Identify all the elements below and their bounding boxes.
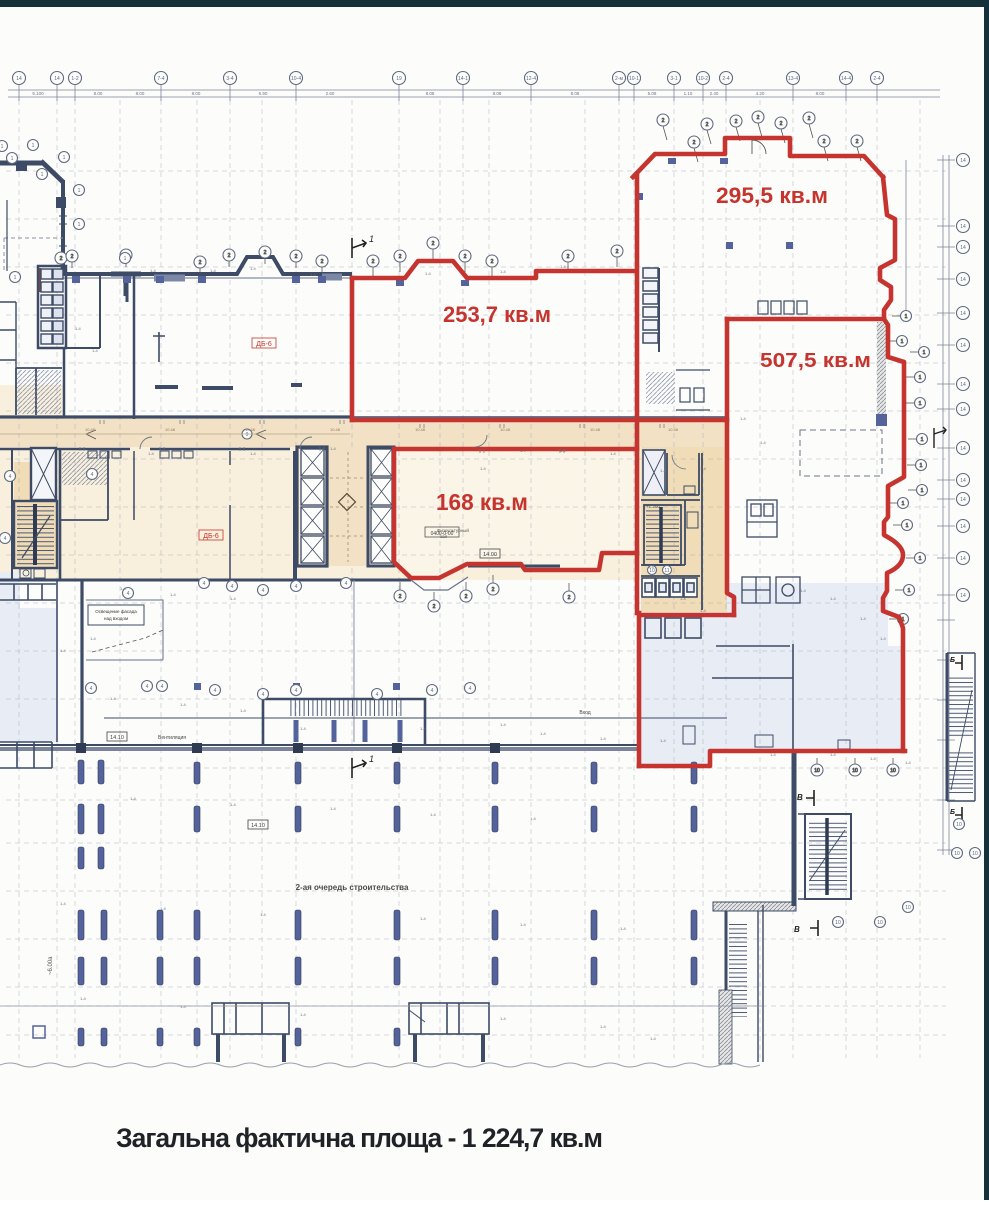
svg-text:5.08: 5.08 bbox=[648, 91, 657, 96]
svg-text:10: 10 bbox=[905, 905, 911, 911]
svg-text:8.00: 8.00 bbox=[816, 91, 825, 96]
svg-text:2.60: 2.60 bbox=[326, 91, 335, 96]
svg-text:4: 4 bbox=[146, 684, 149, 690]
svg-text:2: 2 bbox=[228, 253, 231, 259]
svg-text:10.48: 10.48 bbox=[500, 427, 511, 432]
svg-text:2: 2 bbox=[735, 119, 738, 125]
svg-text:14-4: 14-4 bbox=[841, 76, 851, 82]
svg-text:11: 11 bbox=[664, 568, 669, 574]
svg-text:1-4: 1-4 bbox=[500, 269, 507, 274]
svg-text:Б: Б bbox=[950, 809, 955, 816]
svg-text:1-4: 1-4 bbox=[650, 1036, 657, 1041]
svg-text:1: 1 bbox=[124, 256, 127, 262]
svg-text:4.20: 4.20 bbox=[756, 91, 765, 96]
svg-text:1-4: 1-4 bbox=[830, 752, 837, 757]
svg-text:1-4: 1-4 bbox=[250, 451, 257, 456]
svg-text:4: 4 bbox=[431, 688, 434, 694]
svg-text:10-1: 10-1 bbox=[629, 76, 639, 82]
svg-text:10-4: 10-4 bbox=[291, 76, 301, 82]
svg-text:1-4: 1-4 bbox=[905, 760, 912, 765]
svg-text:1-4: 1-4 bbox=[600, 1024, 607, 1029]
svg-text:1-4: 1-4 bbox=[700, 608, 707, 613]
svg-text:10.48: 10.48 bbox=[165, 427, 176, 432]
svg-text:2: 2 bbox=[465, 594, 468, 600]
svg-text:14: 14 bbox=[960, 478, 966, 484]
svg-text:1-4: 1-4 bbox=[148, 451, 155, 456]
svg-text:1-4: 1-4 bbox=[770, 752, 777, 757]
svg-text:2: 2 bbox=[662, 118, 665, 124]
svg-text:4: 4 bbox=[9, 474, 12, 480]
svg-text:1-4: 1-4 bbox=[180, 1004, 187, 1009]
svg-text:14: 14 bbox=[16, 76, 22, 82]
svg-text:19: 19 bbox=[396, 76, 402, 82]
svg-text:4: 4 bbox=[295, 584, 298, 590]
svg-text:14-1: 14-1 bbox=[458, 76, 468, 82]
svg-text:1-4: 1-4 bbox=[500, 1016, 507, 1021]
svg-text:1-4: 1-4 bbox=[430, 812, 437, 817]
svg-text:5.90: 5.90 bbox=[259, 91, 268, 96]
svg-text:2: 2 bbox=[60, 256, 63, 262]
svg-text:1-4: 1-4 bbox=[680, 596, 687, 601]
svg-text:8.00: 8.00 bbox=[136, 91, 145, 96]
svg-text:2: 2 bbox=[321, 259, 324, 265]
svg-text:14: 14 bbox=[960, 524, 966, 530]
svg-text:1-4: 1-4 bbox=[110, 696, 117, 701]
svg-text:2: 2 bbox=[780, 121, 783, 127]
svg-text:1-4: 1-4 bbox=[75, 326, 82, 331]
svg-text:1-4: 1-4 bbox=[60, 648, 67, 653]
svg-text:1-4: 1-4 bbox=[420, 726, 427, 731]
svg-text:2: 2 bbox=[432, 241, 435, 247]
svg-text:1-4: 1-4 bbox=[520, 922, 527, 927]
svg-text:2-м: 2-м bbox=[615, 76, 623, 82]
svg-text:14.00: 14.00 bbox=[483, 552, 497, 558]
svg-text:Б: Б bbox=[950, 657, 955, 664]
svg-text:1-4: 1-4 bbox=[880, 636, 887, 641]
svg-text:1-4: 1-4 bbox=[560, 448, 567, 453]
svg-text:1: 1 bbox=[921, 488, 924, 494]
svg-text:1-4: 1-4 bbox=[870, 756, 877, 761]
svg-text:12-4: 12-4 bbox=[526, 76, 536, 82]
svg-text:2: 2 bbox=[808, 116, 811, 122]
svg-text:10: 10 bbox=[972, 851, 978, 857]
svg-text:10.48: 10.48 bbox=[668, 427, 679, 432]
svg-text:1-4: 1-4 bbox=[860, 616, 867, 621]
svg-text:1-4: 1-4 bbox=[760, 440, 767, 445]
svg-text:2: 2 bbox=[372, 259, 375, 265]
svg-text:10: 10 bbox=[956, 822, 962, 828]
svg-text:1-4: 1-4 bbox=[170, 592, 177, 597]
svg-text:8.08: 8.08 bbox=[571, 91, 580, 96]
svg-text:1-4: 1-4 bbox=[230, 596, 237, 601]
svg-text:3-4: 3-4 bbox=[226, 76, 233, 82]
svg-text:1-4: 1-4 bbox=[210, 268, 217, 273]
svg-text:1-4: 1-4 bbox=[560, 264, 567, 269]
svg-text:10: 10 bbox=[814, 768, 820, 774]
svg-text:1: 1 bbox=[14, 275, 17, 281]
svg-text:1-4: 1-4 bbox=[600, 736, 607, 741]
svg-text:2: 2 bbox=[693, 140, 696, 146]
svg-text:2: 2 bbox=[71, 254, 74, 260]
svg-text:1-2: 1-2 bbox=[71, 76, 78, 82]
svg-text:1-4: 1-4 bbox=[830, 596, 837, 601]
svg-text:В: В bbox=[794, 925, 800, 934]
svg-text:2: 2 bbox=[433, 604, 436, 610]
svg-text:1: 1 bbox=[32, 143, 35, 149]
svg-text:1-4: 1-4 bbox=[240, 708, 247, 713]
svg-text:2: 2 bbox=[757, 115, 760, 121]
svg-text:1-4: 1-4 bbox=[90, 636, 97, 641]
svg-text:2: 2 bbox=[295, 254, 298, 260]
svg-text:10: 10 bbox=[835, 920, 841, 926]
svg-text:1-4: 1-4 bbox=[250, 266, 257, 271]
svg-text:14: 14 bbox=[960, 224, 966, 230]
svg-text:4: 4 bbox=[127, 591, 130, 597]
svg-text:8.08: 8.08 bbox=[426, 91, 435, 96]
svg-text:1: 1 bbox=[1, 144, 4, 150]
svg-text:14: 14 bbox=[960, 407, 966, 413]
svg-text:4: 4 bbox=[262, 692, 265, 698]
svg-text:2-ая очередь строительства: 2-ая очередь строительства bbox=[296, 883, 409, 892]
svg-text:4: 4 bbox=[203, 581, 206, 587]
svg-text:1: 1 bbox=[905, 314, 908, 320]
svg-text:168 кв.м: 168 кв.м bbox=[436, 489, 528, 515]
svg-text:4: 4 bbox=[231, 584, 234, 590]
svg-text:14.10: 14.10 bbox=[110, 735, 124, 741]
svg-text:1-4: 1-4 bbox=[300, 726, 307, 731]
svg-text:1: 1 bbox=[369, 754, 374, 764]
svg-text:1-4: 1-4 bbox=[230, 802, 237, 807]
svg-text:1: 1 bbox=[902, 501, 905, 507]
svg-text:1-4: 1-4 bbox=[120, 586, 127, 591]
svg-text:1: 1 bbox=[63, 155, 66, 161]
svg-text:14.10: 14.10 bbox=[251, 823, 265, 829]
svg-text:1-4: 1-4 bbox=[150, 268, 157, 273]
svg-text:2: 2 bbox=[706, 122, 709, 128]
svg-text:~6.00а: ~6.00а bbox=[48, 956, 54, 975]
svg-text:2: 2 bbox=[616, 249, 619, 255]
svg-text:1-4: 1-4 bbox=[425, 271, 432, 276]
svg-text:8.00: 8.00 bbox=[94, 91, 103, 96]
svg-text:1: 1 bbox=[921, 437, 924, 443]
svg-text:Освещение фасада: Освещение фасада bbox=[95, 609, 137, 614]
svg-text:1-4: 1-4 bbox=[800, 588, 807, 593]
svg-text:1: 1 bbox=[78, 188, 81, 194]
svg-text:4: 4 bbox=[295, 688, 298, 694]
svg-text:14: 14 bbox=[960, 343, 966, 349]
svg-text:10: 10 bbox=[890, 768, 896, 774]
svg-text:1-4: 1-4 bbox=[310, 272, 317, 277]
svg-text:1-4: 1-4 bbox=[260, 912, 267, 917]
svg-text:В: В bbox=[797, 793, 803, 802]
svg-text:4: 4 bbox=[91, 472, 94, 478]
svg-text:1: 1 bbox=[78, 222, 81, 228]
svg-text:2: 2 bbox=[823, 139, 826, 145]
svg-text:ДБ-6: ДБ-6 bbox=[203, 533, 219, 540]
svg-text:1-4: 1-4 bbox=[420, 916, 427, 921]
svg-text:14: 14 bbox=[960, 382, 966, 388]
svg-text:2: 2 bbox=[567, 254, 570, 260]
svg-text:1.10: 1.10 bbox=[684, 91, 693, 96]
svg-text:10: 10 bbox=[852, 768, 858, 774]
svg-text:1-4: 1-4 bbox=[648, 564, 655, 569]
svg-text:1-4: 1-4 bbox=[330, 446, 337, 451]
svg-text:295,5 кв.м: 295,5 кв.м bbox=[716, 183, 828, 208]
svg-text:1-4: 1-4 bbox=[740, 416, 747, 421]
svg-text:1: 1 bbox=[11, 156, 14, 162]
svg-text:10.48: 10.48 bbox=[590, 427, 601, 432]
svg-text:2: 2 bbox=[492, 587, 495, 593]
svg-text:4: 4 bbox=[4, 536, 7, 542]
svg-text:14: 14 bbox=[54, 76, 60, 82]
svg-text:253,7 кв.м: 253,7 кв.м bbox=[443, 302, 551, 327]
svg-text:1-4: 1-4 bbox=[610, 451, 617, 456]
svg-text:над входом: над входом bbox=[104, 616, 128, 621]
svg-text:1-4: 1-4 bbox=[660, 738, 667, 743]
svg-text:2: 2 bbox=[464, 254, 467, 260]
svg-text:4: 4 bbox=[469, 686, 472, 692]
svg-text:1-4: 1-4 bbox=[480, 466, 487, 471]
svg-text:2: 2 bbox=[199, 260, 202, 266]
svg-text:2: 2 bbox=[491, 259, 494, 265]
svg-text:8.00: 8.00 bbox=[192, 91, 201, 96]
svg-text:1-4: 1-4 bbox=[500, 722, 507, 727]
svg-text:1-4: 1-4 bbox=[92, 348, 99, 353]
svg-text:10: 10 bbox=[877, 920, 883, 926]
svg-text:1-4: 1-4 bbox=[620, 926, 627, 931]
svg-text:13-4: 13-4 bbox=[788, 76, 798, 82]
svg-text:1: 1 bbox=[920, 463, 923, 469]
svg-text:1-4: 1-4 bbox=[300, 1012, 307, 1017]
svg-text:2.40: 2.40 bbox=[710, 91, 719, 96]
svg-text:1: 1 bbox=[41, 172, 44, 178]
svg-text:14: 14 bbox=[960, 277, 966, 283]
svg-text:1-4: 1-4 bbox=[130, 796, 137, 801]
svg-text:1-4: 1-4 bbox=[60, 901, 67, 906]
svg-text:14: 14 bbox=[960, 158, 966, 164]
svg-text:1-4: 1-4 bbox=[700, 466, 707, 471]
svg-text:1: 1 bbox=[369, 234, 374, 244]
svg-text:9: 9 bbox=[246, 432, 249, 438]
svg-text:14: 14 bbox=[960, 556, 966, 562]
svg-text:Вентиляция: Вентиляция bbox=[158, 735, 186, 741]
svg-text:2: 2 bbox=[264, 250, 267, 256]
svg-text:5.100: 5.100 bbox=[32, 91, 44, 96]
svg-text:1-4: 1-4 bbox=[80, 996, 87, 1001]
svg-text:7-4: 7-4 bbox=[157, 76, 164, 82]
svg-text:2: 2 bbox=[568, 595, 571, 601]
svg-text:2: 2 bbox=[399, 254, 402, 260]
svg-text:1-4: 1-4 bbox=[530, 816, 537, 821]
svg-text:14: 14 bbox=[960, 311, 966, 317]
svg-text:1: 1 bbox=[908, 588, 911, 594]
svg-text:1: 1 bbox=[919, 375, 922, 381]
svg-text:14: 14 bbox=[960, 497, 966, 503]
svg-text:ДБ-6: ДБ-6 bbox=[256, 341, 272, 348]
svg-text:2: 2 bbox=[399, 594, 402, 600]
svg-text:10.48: 10.48 bbox=[330, 427, 341, 432]
svg-text:1-4: 1-4 bbox=[180, 702, 187, 707]
svg-text:1-4: 1-4 bbox=[520, 448, 527, 453]
svg-text:1: 1 bbox=[919, 556, 922, 562]
svg-text:1: 1 bbox=[919, 401, 922, 407]
svg-text:Вход: Вход bbox=[579, 710, 590, 716]
svg-text:10: 10 bbox=[954, 851, 960, 857]
svg-text:14: 14 bbox=[960, 446, 966, 452]
svg-text:14: 14 bbox=[960, 593, 966, 599]
svg-text:1-4: 1-4 bbox=[540, 731, 547, 736]
svg-text:4: 4 bbox=[345, 581, 348, 587]
svg-text:4: 4 bbox=[161, 684, 164, 690]
svg-text:2-4: 2-4 bbox=[873, 76, 880, 82]
svg-text:14: 14 bbox=[960, 245, 966, 251]
svg-text:4: 4 bbox=[376, 692, 379, 698]
svg-text:3-1: 3-1 bbox=[670, 76, 677, 82]
svg-text:10.48: 10.48 bbox=[85, 427, 96, 432]
svg-text:1-4: 1-4 bbox=[160, 906, 167, 911]
svg-text:0400-0-00: 0400-0-00 bbox=[431, 531, 454, 537]
svg-text:1: 1 bbox=[901, 339, 904, 345]
svg-text:4: 4 bbox=[214, 688, 217, 694]
svg-text:8.08: 8.08 bbox=[493, 91, 502, 96]
svg-text:4: 4 bbox=[262, 588, 265, 594]
svg-text:10-2: 10-2 bbox=[698, 76, 708, 82]
svg-text:2-4: 2-4 bbox=[722, 76, 729, 82]
svg-text:1-4: 1-4 bbox=[660, 468, 667, 473]
svg-text:4: 4 bbox=[90, 686, 93, 692]
svg-text:+1.200: +1.200 bbox=[646, 504, 660, 509]
svg-text:Загальна фактична площа - 1 22: Загальна фактична площа - 1 224,7 кв.м bbox=[116, 1123, 603, 1153]
svg-text:1-4: 1-4 bbox=[330, 806, 337, 811]
svg-text:10.48: 10.48 bbox=[245, 427, 256, 432]
svg-text:507,5 кв.м: 507,5 кв.м bbox=[760, 350, 871, 372]
svg-text:1: 1 bbox=[923, 350, 926, 356]
svg-text:2: 2 bbox=[856, 139, 859, 145]
svg-text:1: 1 bbox=[906, 523, 909, 529]
